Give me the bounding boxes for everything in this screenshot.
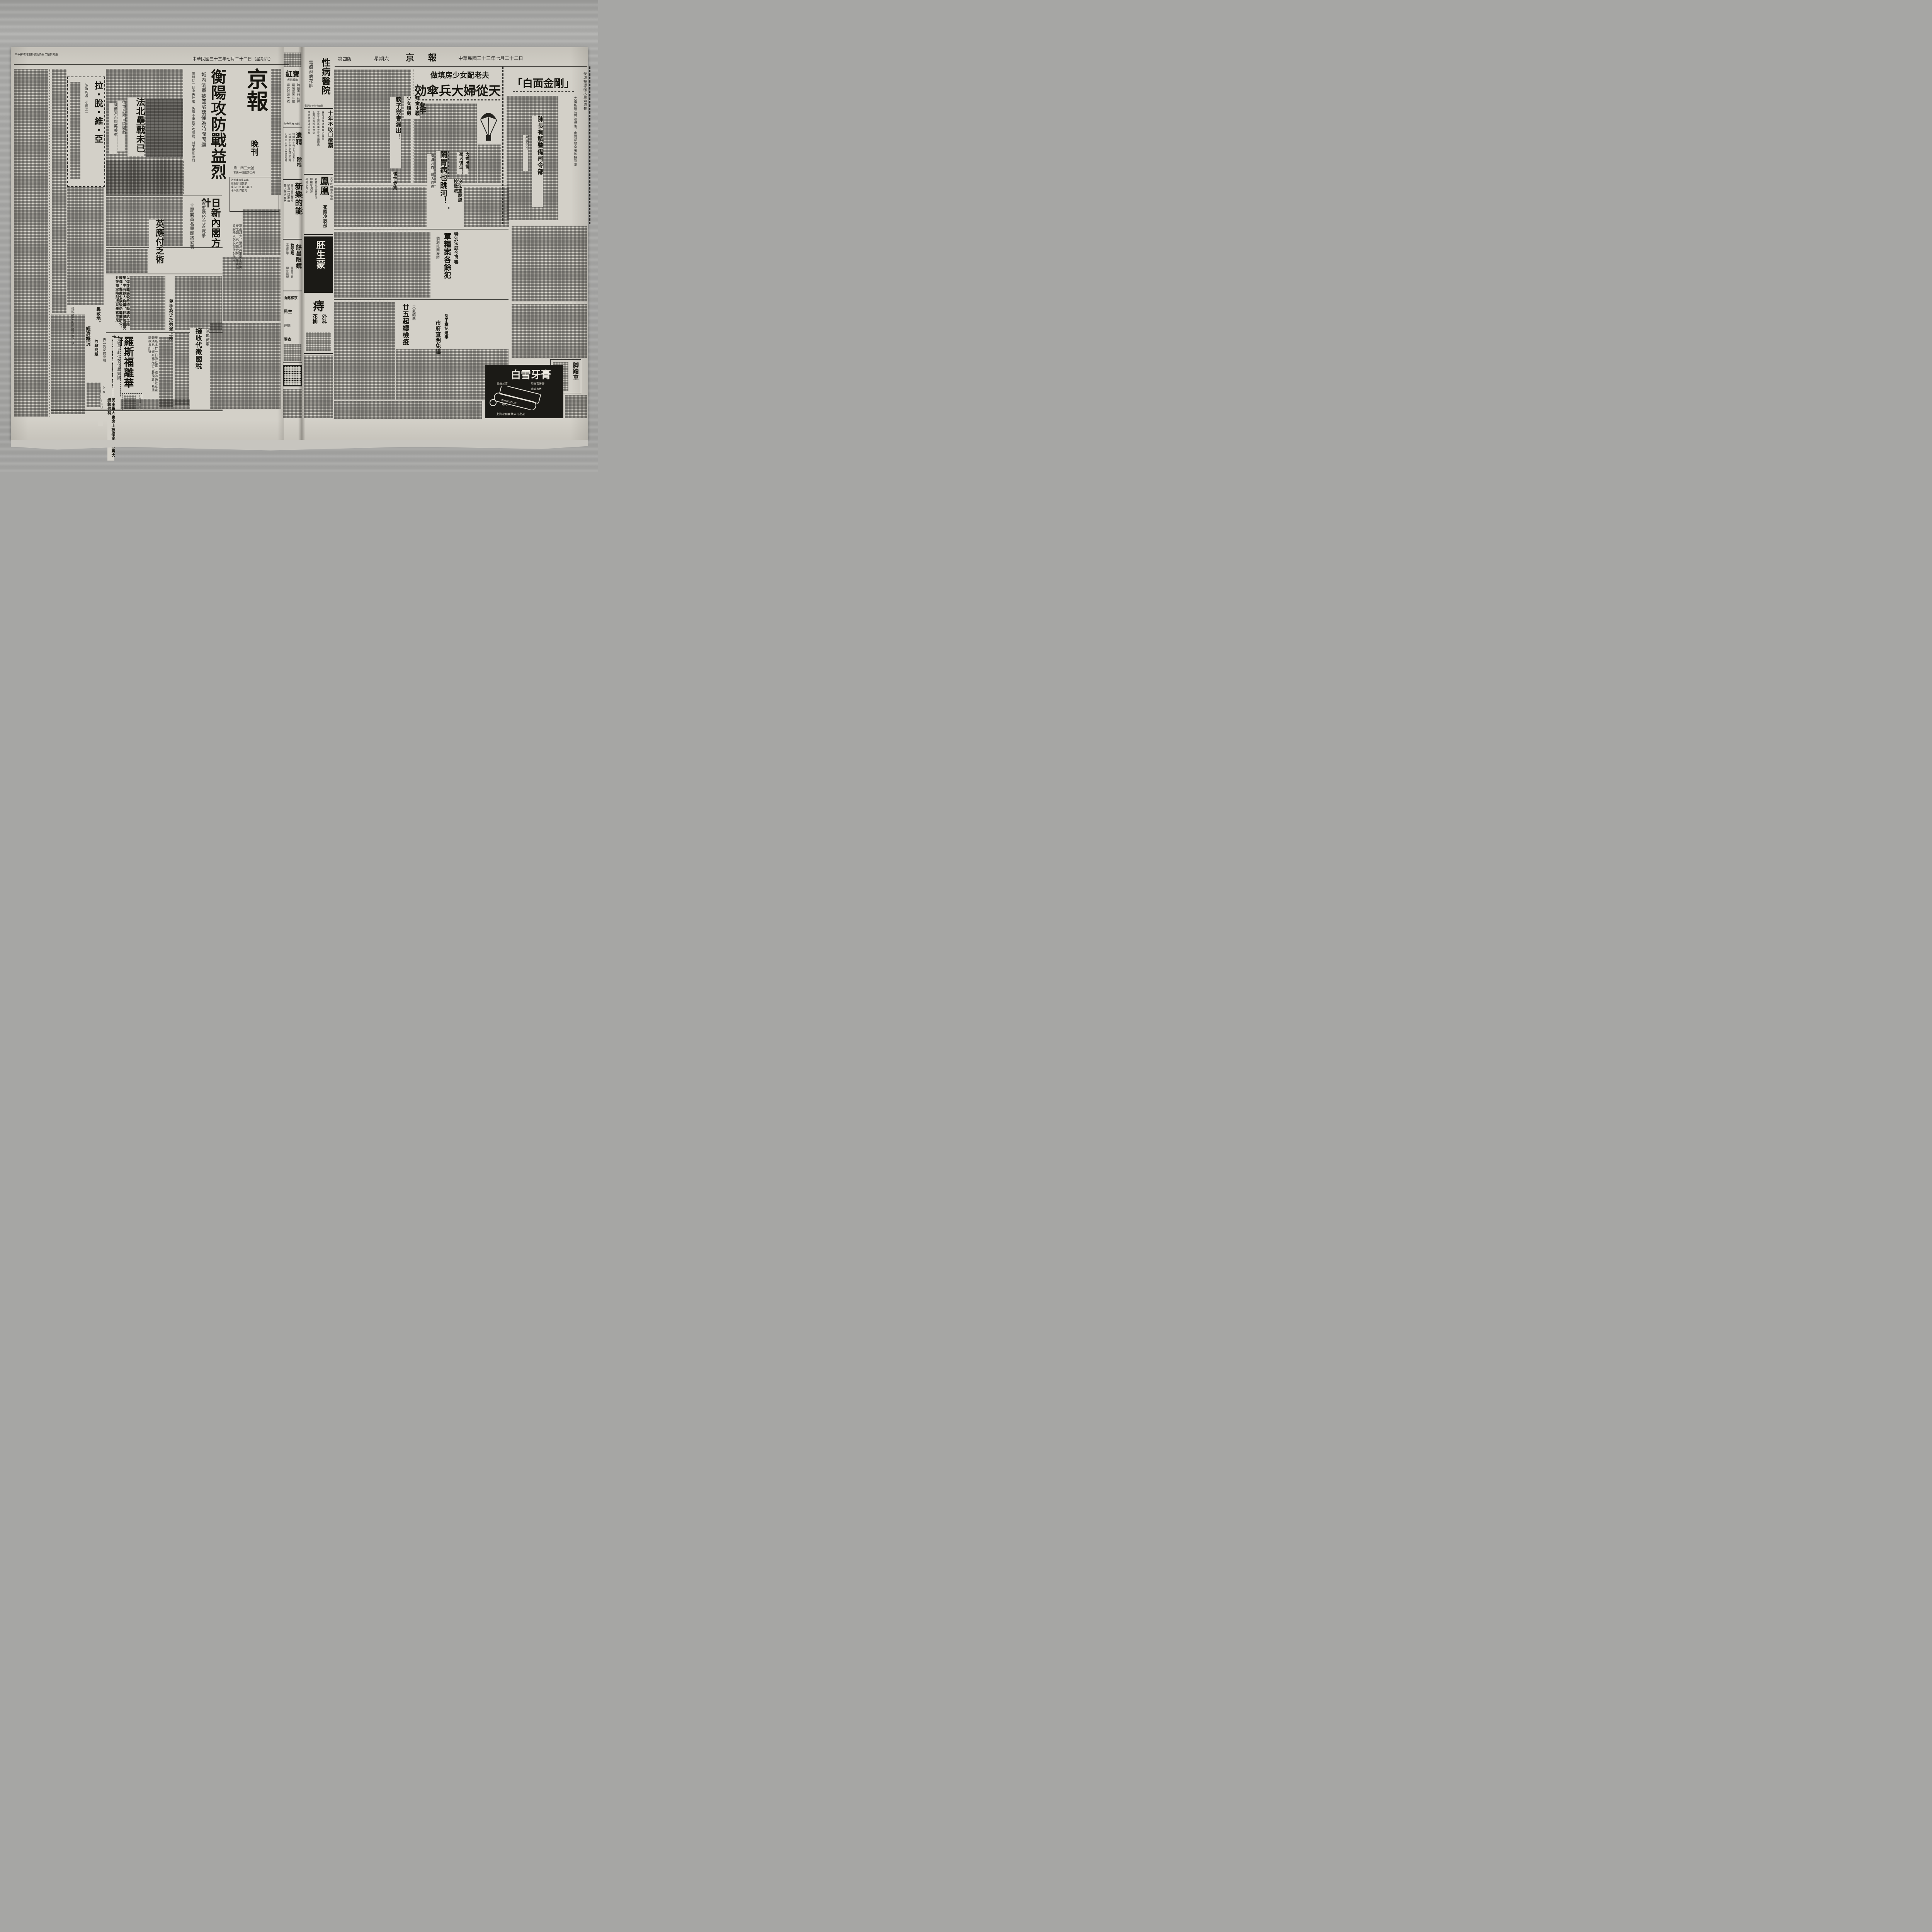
cabinet-kicker-2: 全部閣員名單即將發表 <box>184 203 194 253</box>
ad-yuchang-title: 餘昌眼鏡 <box>294 244 301 287</box>
right-date-line: 中華民國三十三年七月二十二日 <box>458 55 543 61</box>
ad-hongbao-line: 婦女時裝大衣 <box>285 83 290 121</box>
small-ad: 雨衣 <box>284 336 301 342</box>
headline-stomach-river: 鬧胃病也跳河！ <box>436 151 447 214</box>
latvia-article-text <box>67 187 104 305</box>
naowei-kicker: 秦淮河內一婦人自盡 <box>427 154 434 206</box>
bold-gold-worship: 拜金主義 <box>413 96 420 119</box>
torn-paper-edge <box>11 440 588 451</box>
gutter-top-note <box>284 53 301 67</box>
left-mid-text <box>223 257 281 321</box>
ad-yuchang-line: 視覺不良 <box>289 267 293 287</box>
subhead-dead-revives: 死人復生 <box>457 152 462 174</box>
roosevelt-lead-text: 里斯本廿一日斯社電：據海通社華盛頓消息：羅斯福是否已赴倫敦，為此間政界所疑 <box>134 336 158 395</box>
left-header-rule <box>14 64 289 65</box>
fabei-kicker-2: 威爾河西岸英美軍 <box>109 103 117 154</box>
ad-xinle: 新樂的能 男用白色藥片 解決一切淋病 各大藥房有售 <box>283 181 302 240</box>
ad-yuchang-line: 間接障礙 <box>284 267 288 287</box>
masthead-title: 京報 <box>237 68 267 138</box>
gutter-right-bottom-text <box>304 355 333 418</box>
right-lower-strip-text <box>512 304 587 358</box>
hengyang-kicker: 城內渝軍被圍陷落僅為時間問題 <box>196 72 206 192</box>
ad-xinle-line: 各大藥房有售 <box>282 184 286 236</box>
fabei-kicker-1: 德軍於兩日間毀敵 <box>117 100 125 151</box>
ad-hongbao: 紅寶 呢絨服飾 聘請專門技師 精製高等洋服 婦女時裝大衣 各色男女袍料 <box>283 69 302 128</box>
ad-hongbao-line: 聘請專門技師 <box>295 83 300 121</box>
publisher-line: 編輯部 營業部 <box>231 182 277 185</box>
wavy-rule <box>415 99 500 100</box>
headline-shoulder-leak: 膀子豈會漏出！ <box>390 97 401 168</box>
ad-vd-hospital: 性病醫院 電療淋病花柳 電話鼓樓六十四號 <box>304 57 333 109</box>
ad-phoenix-title: 鳳凰 <box>318 176 328 204</box>
gutter-black-ad <box>283 365 302 386</box>
headline-parachute-wife: 効傘兵大婦從天降 <box>414 81 502 97</box>
bold-young-girl: 少女填房 <box>404 96 411 119</box>
roosevelt-end-marks: ×× <box>101 386 106 400</box>
ad-hongbao-footer: 各色男女袍料 <box>284 122 301 126</box>
right-strip-text <box>512 226 587 301</box>
masthead-price: 零售一張國幣二元 <box>233 171 274 175</box>
ad-phoenix-sub: 花園冷飲部 <box>320 205 327 233</box>
shifu-kicker: 岳子章記過事 <box>441 314 447 349</box>
ad-yijing-line: 北京天安堂南京國府路 <box>283 133 287 176</box>
hitler-body-text <box>130 276 165 330</box>
tax-kicker: 渝偽徵軍 <box>202 329 209 365</box>
headline-hengyang-battle: 衡陽攻防戰益烈 <box>206 69 225 196</box>
ad-sore-medicine: 十年不收口瘡藥 專治潰爛流膿難治毒瘡 三日全愈新藥更靈每瓶四元 上海三馬路蓋世堂… <box>304 110 333 175</box>
ad-yijing-title2: 除根 <box>295 157 301 175</box>
right-bottom-corner-text <box>565 395 587 418</box>
snow-ad-brand: 白雪牙膏 <box>511 367 561 380</box>
ad-sore-line: 南京國府路過街樓 <box>305 111 310 172</box>
quarantine-band-text <box>334 302 395 400</box>
ad-white-snow-toothpaste: 白雪牙膏 用白雪牙膏 齒白如雪 處處有售 WS WHITE SNOW 上海永和實… <box>485 365 563 418</box>
white-faced-demon-box: 受虐被逐控夫重婚遺棄 「白面金剛」 大毒販陳長有被捕後，由首都警察署移解到京 陳… <box>502 66 590 224</box>
snow-ad-line1: 用白雪牙膏 <box>531 382 561 386</box>
jianyi-kicker: 天氣酷熱 <box>410 305 415 333</box>
subhead-wife-appears: 大婦出現 <box>463 152 468 174</box>
england-band-text <box>106 249 148 273</box>
ad-phoenix-line: 檸檬冰淇淋 <box>308 178 313 233</box>
snow-ad-company: 上海永和實業公司出品 <box>496 412 558 416</box>
ad-phoenix-garden: 夏令晚間消暑佳處 鳳凰 花園冷飲部 著名鳳凰鮮桔汁 檸檬冰淇淋 荷蘭水汽水 <box>304 175 333 235</box>
ad-vd-phone: 電話鼓樓六十四號 <box>304 104 332 107</box>
masthead-edition: 晚刊 <box>243 140 258 164</box>
gutter-small-ads: 由滬移京 民生 經銷 雨衣 <box>283 293 302 363</box>
ad-hemorrhoid-clinic: 痔 外科 花柳 <box>304 295 333 354</box>
gutter-left-bottom-text <box>283 389 302 418</box>
newspaper-spread: 中華郵政特准掛號認為第二類新聞紙 中華民國三十三年七月二十二日（星期六） 京報 … <box>11 47 588 440</box>
ad-sore-title: 十年不收口瘡藥 <box>325 111 332 173</box>
cabinet-kicker-1: 置重點於完遂戰爭 <box>196 201 206 251</box>
baimian-edge-note: 受虐被逐控夫重婚遺棄 <box>579 72 586 153</box>
baimian-dotted-rule <box>513 91 575 92</box>
notice-date: 七月廿一日 <box>137 395 141 409</box>
ad-peisheng-title: 胚生蒙 <box>313 240 325 290</box>
section-rule <box>106 274 223 274</box>
newspaper-scan: 中華郵政特准掛號認為第二類新聞紙 中華民國三十三年七月二十二日（星期六） 京報 … <box>0 0 598 472</box>
headline-northern-france: 法北壘戰未已 <box>128 97 144 156</box>
mid-band-body-text-2 <box>464 187 509 227</box>
headline-white-faced-demon: 「白面金剛」 <box>512 75 577 90</box>
latvia-feature-box: 拉・脫・維・亞 波羅的海三小國之一 <box>67 77 105 187</box>
headline-national-tax: 接收代徵國稅 <box>190 328 201 400</box>
ad-hongbao-line: 精製高等洋服 <box>290 83 295 121</box>
headline-latvia: 拉・脫・維・亞 <box>90 81 102 175</box>
small-ad-text <box>284 344 301 361</box>
left-page-bottom-rule <box>51 410 223 411</box>
ad-yuchang: 餘昌眼鏡 救配戴 視覺不良 直接影響 間接障礙 <box>283 240 302 291</box>
crosshead-interior-affairs: 內政問題 <box>91 339 97 373</box>
headline-roosevelt-leaves: 羅斯福離華府 <box>121 336 133 397</box>
right-bottom-band-text <box>334 401 482 419</box>
junliang-body-text <box>334 232 430 298</box>
ad-hemorrhoid-sub2: 花柳 <box>311 314 317 330</box>
naowei-bold-inline: 沒法擺脫誣控做賊 <box>447 179 462 205</box>
decoration-notice-box: 七月廿一日 <box>122 393 142 410</box>
parachute-right-body-text <box>478 145 501 183</box>
left-edge-column-text <box>14 69 48 417</box>
left-column-rule <box>49 69 50 417</box>
left-narrow-column-text <box>52 69 66 313</box>
ad-bicycle-title: 脚踏車 <box>570 362 578 391</box>
right-edition-label: 第四版 <box>338 56 353 62</box>
cabinet-band-text <box>106 197 183 246</box>
publisher-line: 廣告刊例 每行每日 <box>231 185 277 189</box>
small-ad: 由滬移京 <box>284 295 301 301</box>
mid-band-body-text <box>334 187 427 227</box>
headline-quarantine-25th: 廿五起總檢疫 <box>397 304 408 347</box>
latvia-crosshead-hub: 集散地。 <box>94 307 100 334</box>
ad-yuchang-tag: 救配戴 <box>289 243 293 265</box>
baimian-lead-text: 大毒販陳長有被捕後，由首都警察署移解到京 <box>561 97 577 216</box>
right-section-rule <box>334 185 509 185</box>
publisher-line: 社址南京朱雀路 <box>231 179 277 182</box>
masthead-below-text <box>243 209 281 255</box>
roosevelt-right-text <box>159 337 173 407</box>
small-ad: 民生 <box>284 308 301 315</box>
left-date-line: 中華民國三十三年七月二十二日（星期六） <box>192 56 290 61</box>
snow-ad-line2: 齒白如雪 <box>497 382 522 386</box>
publisher-line: 十八元 四百元 <box>231 189 277 192</box>
turkey-below-text <box>87 383 100 407</box>
ad-hongbao-sub: 呢絨服飾 <box>283 78 302 82</box>
ad-phoenix-line: 著名鳳凰鮮桔汁 <box>313 178 317 233</box>
headline-england-at-loss: 英應付乏術 <box>149 219 163 265</box>
headline-army-grain-case: 軍糧案各餘犯 <box>440 233 451 284</box>
ad-sore-line: 上海三馬路蓋世堂 <box>310 111 315 172</box>
postal-registration-note: 中華郵政特准掛號認為第二類新聞紙 <box>15 53 80 61</box>
baimian-side-note: 死裏逃生 <box>523 135 528 171</box>
ad-yuchang-line: 直接影響 <box>284 243 288 265</box>
column-dotted-rule <box>413 69 413 183</box>
tax-band-text <box>175 333 189 405</box>
headline-new-cabinet: 日新內閣方針 <box>209 198 220 252</box>
section-rule <box>106 247 223 248</box>
junliang-kicker: 特別法庭今再審 <box>451 232 458 279</box>
ad-yijing: 遺精 除根 特貼四十元下月售五十 函購加十元上海江西路 北京天安堂南京國府路 <box>283 130 302 180</box>
ad-xinle-title: 新樂的能 <box>294 182 302 230</box>
right-section-rule <box>334 299 509 300</box>
notice-text <box>124 395 136 409</box>
ad-yijing-line: 函購加十元上海江西路 <box>287 133 291 176</box>
ad-yijing-line: 特貼四十元下月售五十 <box>291 133 294 176</box>
hengyang-lead-text: 廣州廿一日中央社電：衡陽市街雙方攻防戰，刻下更形激烈 <box>184 72 195 192</box>
ad-peisheng: 胚生蒙 <box>304 236 333 293</box>
ad-phoenix-line: 荷蘭水汽水 <box>304 178 308 233</box>
right-section-rule <box>334 229 509 230</box>
turkey-kicker: 輿論仍反對參戰 <box>100 338 106 385</box>
ad-hemorrhoid-title: 痔 <box>312 297 325 311</box>
mid-column-text <box>146 99 183 157</box>
masthead-issue-number: 第一四三六號 <box>233 165 274 170</box>
ad-sore-line: 專治潰爛流膿難治毒瘡 <box>319 111 324 172</box>
parachute-icon <box>478 105 498 142</box>
mid-band-text <box>175 276 222 330</box>
ad-vd-title: 性病醫院 <box>315 58 329 104</box>
parachute-kicker: 做填房少女配老夫 <box>430 70 489 80</box>
latvia-kicker: 波羅的海三小國之一 <box>82 83 88 169</box>
bottom-right-band-text <box>210 323 281 409</box>
ad-hemorrhoid-text <box>306 332 331 351</box>
bottom-left-text <box>51 315 85 414</box>
roosevelt-kicker: 是否已赴倫敦似屬疑問 <box>113 338 121 396</box>
latvia-box-text <box>70 82 80 179</box>
junliang-subhead: 個別訊問歷時 <box>434 236 439 276</box>
baimian-sub-headline: 陳長有解警備司令部 <box>532 116 543 207</box>
hitler-bold-lead: 以爆炸圖謀殺希特勒總統之結果，中有數人負傷，但總統僅受輕傷，傷處包紮後仍繼續辦公… <box>107 276 129 330</box>
ad-yijing-title: 遺精 <box>294 132 301 155</box>
ad-sore-line: 三日全愈新藥更靈每瓶四元 <box>315 111 319 172</box>
right-paper-title: 京 報 <box>406 51 444 63</box>
right-weekday-label: 星期六 <box>374 55 396 62</box>
roosevelt-note-bold: 民主黨大會席上被指定為該黨大總統候補 <box>107 398 114 461</box>
ad-hongbao-title: 紅寶 <box>283 69 302 77</box>
black-ad-text <box>284 366 301 385</box>
ad-hemorrhoid-sub1: 外科 <box>320 314 326 330</box>
ad-vd-services: 電療淋病花柳 <box>307 60 313 103</box>
small-ad: 經銷 <box>284 323 301 328</box>
fabei-body-text <box>106 160 184 194</box>
section-rule <box>106 196 222 196</box>
